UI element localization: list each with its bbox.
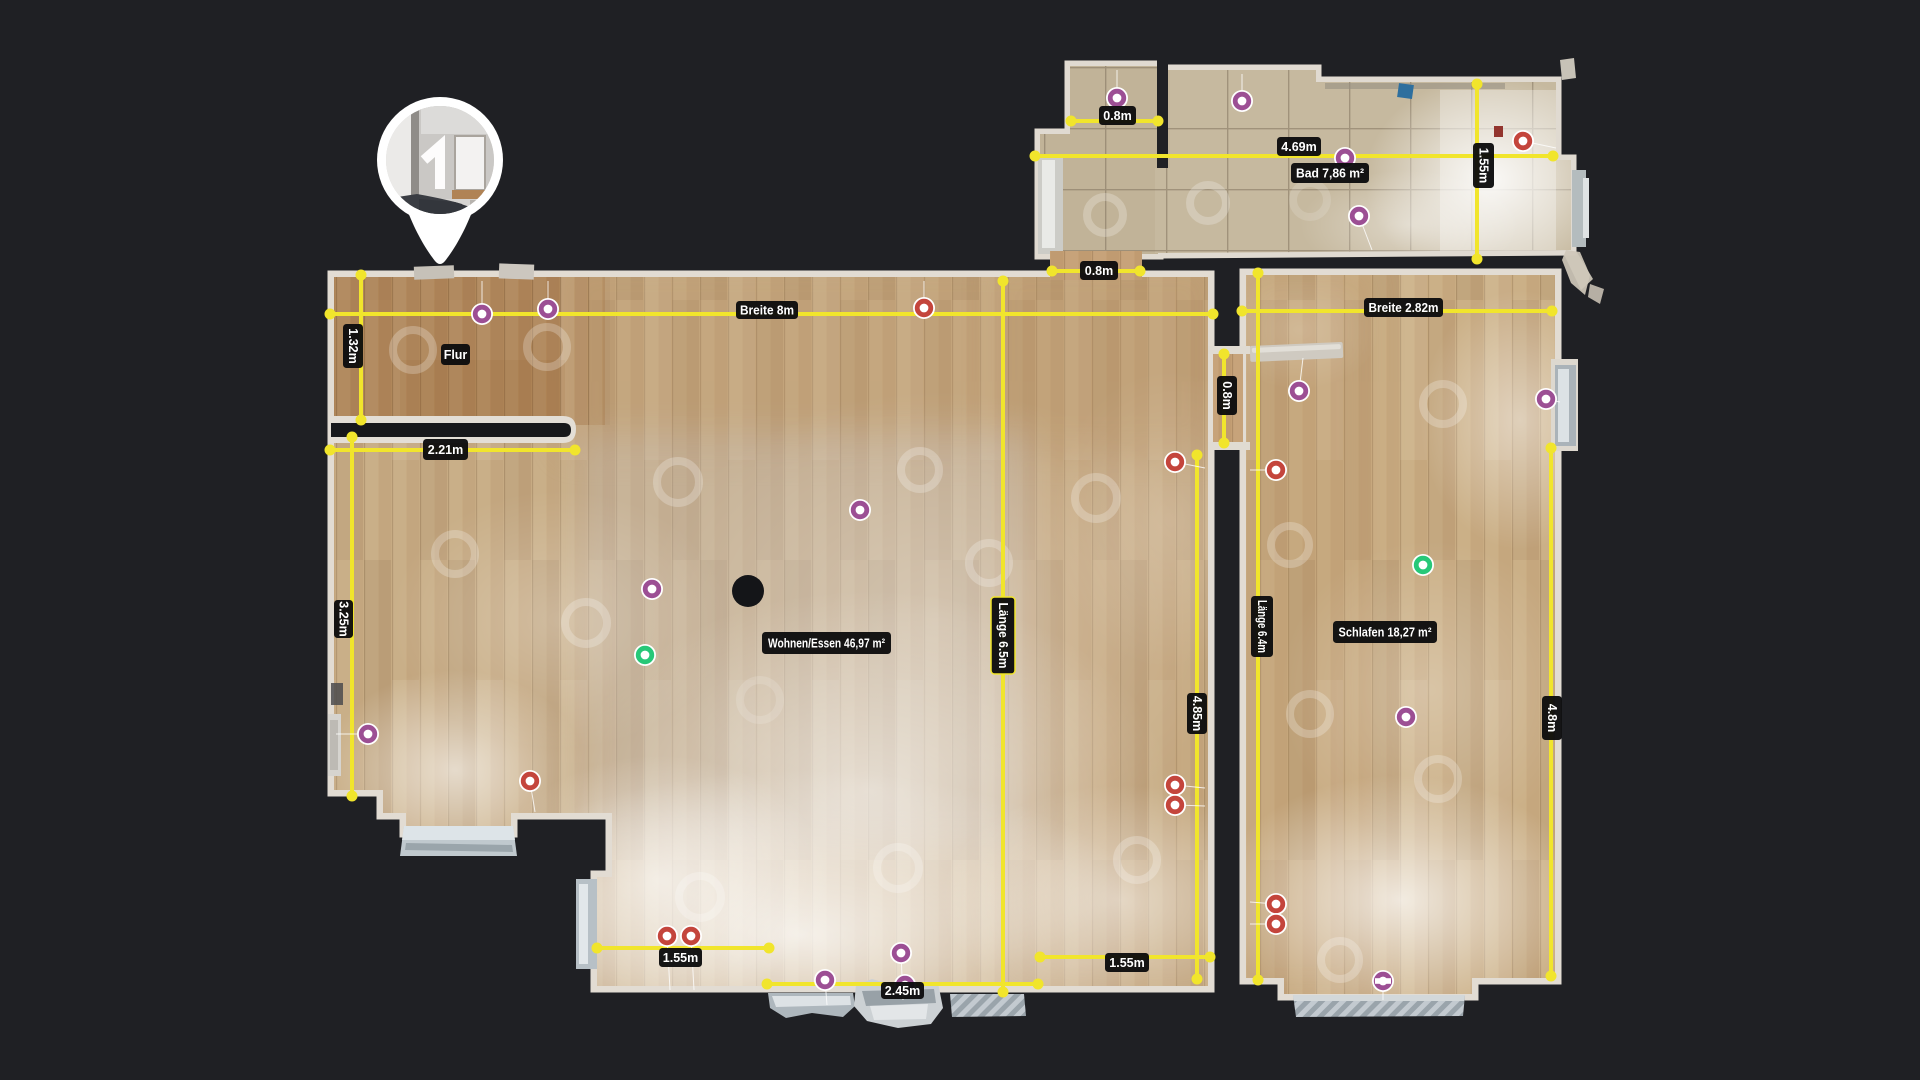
- svg-text:Länge 6.5m: Länge 6.5m: [996, 603, 1010, 669]
- svg-text:1.55m: 1.55m: [663, 951, 698, 965]
- svg-text:Flur: Flur: [444, 348, 468, 362]
- svg-text:2.45m: 2.45m: [885, 984, 920, 998]
- svg-text:4.8m: 4.8m: [1545, 704, 1559, 733]
- svg-text:0.8m: 0.8m: [1103, 109, 1132, 123]
- svg-text:4.69m: 4.69m: [1281, 140, 1316, 154]
- svg-text:1.55m: 1.55m: [1477, 148, 1491, 183]
- svg-text:Bad 7,86 m²: Bad 7,86 m²: [1296, 167, 1364, 181]
- svg-text:4.85m: 4.85m: [1190, 696, 1204, 731]
- svg-text:Länge 6.4m: Länge 6.4m: [1255, 600, 1269, 653]
- svg-text:1.55m: 1.55m: [1109, 956, 1144, 970]
- svg-text:0.8m: 0.8m: [1085, 264, 1114, 278]
- svg-text:Breite 2.82m: Breite 2.82m: [1369, 301, 1439, 315]
- svg-text:Wohnen/Essen 46,97 m²: Wohnen/Essen 46,97 m²: [768, 637, 885, 651]
- svg-text:0.8m: 0.8m: [1220, 381, 1234, 410]
- svg-text:Breite 8m: Breite 8m: [740, 304, 794, 318]
- svg-text:3.25m: 3.25m: [337, 601, 351, 636]
- svg-text:2.21m: 2.21m: [428, 443, 463, 457]
- svg-text:Schlafen 18,27 m²: Schlafen 18,27 m²: [1339, 626, 1432, 640]
- svg-text:1.32m: 1.32m: [346, 328, 360, 363]
